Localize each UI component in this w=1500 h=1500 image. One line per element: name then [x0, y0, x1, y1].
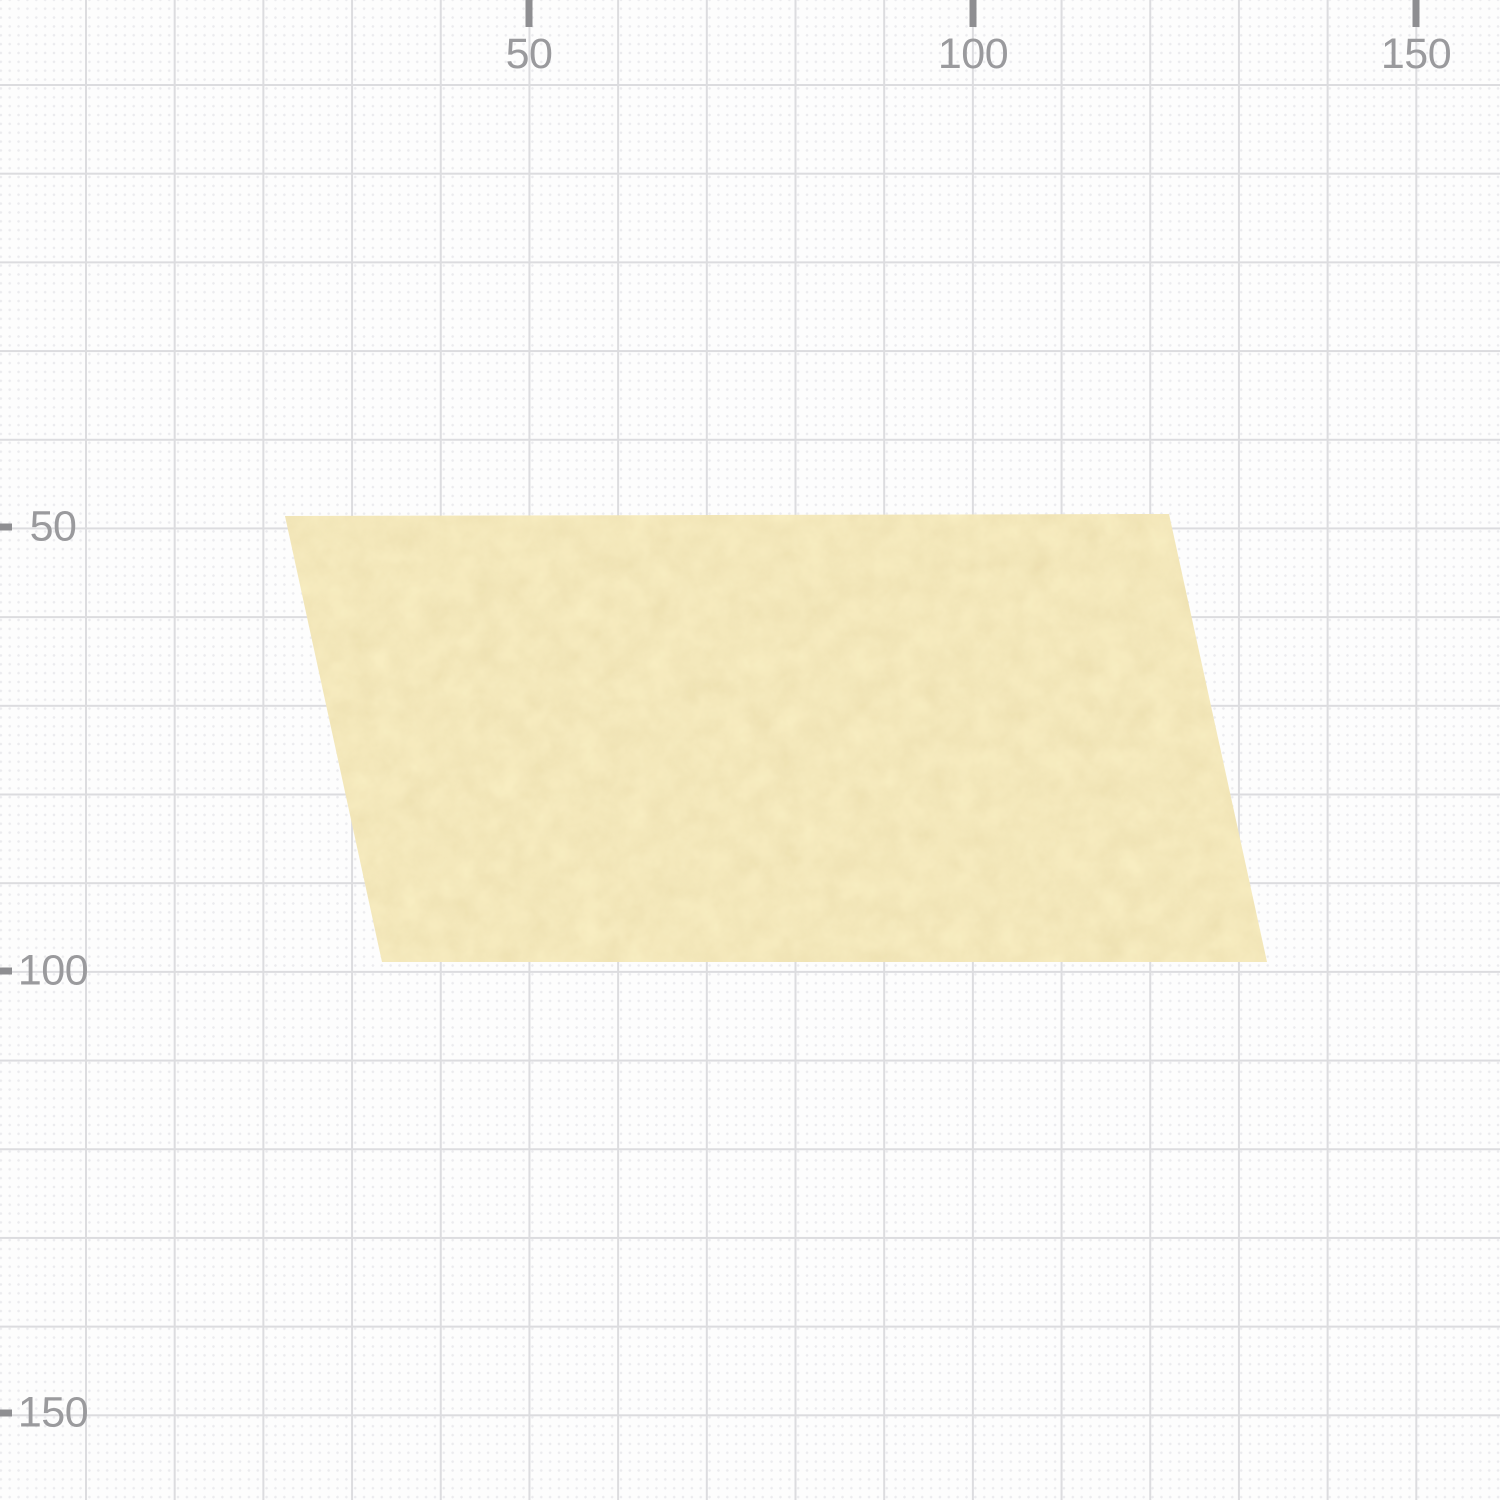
- y-axis-tick-label: 50: [30, 506, 77, 549]
- y-axis-tick-mark: [0, 1410, 12, 1417]
- x-axis-tick-label: 50: [506, 33, 553, 76]
- parallelogram-shape[interactable]: [285, 514, 1267, 962]
- x-axis-tick-label: 150: [1381, 33, 1451, 76]
- y-axis-tick-mark: [0, 524, 12, 531]
- x-axis-tick-mark: [526, 0, 533, 27]
- y-axis-tick-label: 100: [18, 950, 88, 993]
- x-axis-tick-mark: [1413, 0, 1420, 27]
- y-axis-tick-mark: [0, 968, 12, 975]
- x-axis-tick-label: 100: [938, 33, 1008, 76]
- grid-canvas[interactable]: 50 100 150 50 100 150: [0, 0, 1500, 1500]
- y-axis-tick-label: 150: [18, 1392, 88, 1435]
- shape-layer: [0, 0, 1500, 1500]
- x-axis-tick-mark: [970, 0, 977, 27]
